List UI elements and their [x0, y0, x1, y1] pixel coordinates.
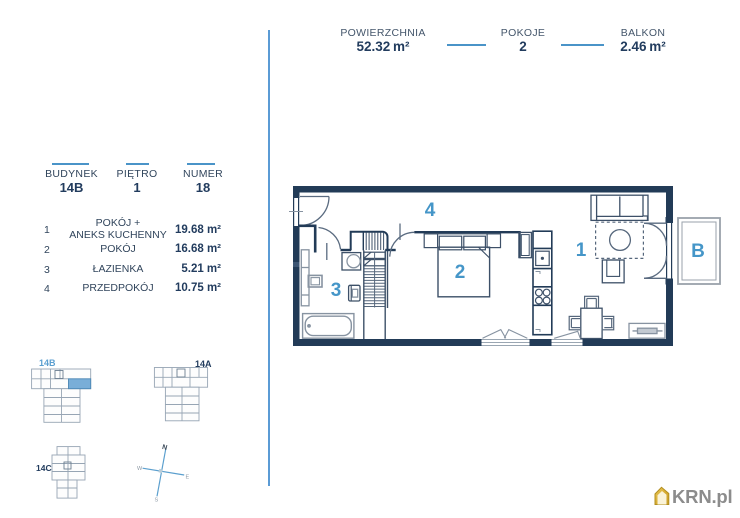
svg-text:S: S — [155, 498, 159, 504]
svg-text:N: N — [161, 444, 168, 452]
svg-text:W: W — [137, 466, 143, 472]
svg-text:E: E — [186, 475, 190, 481]
